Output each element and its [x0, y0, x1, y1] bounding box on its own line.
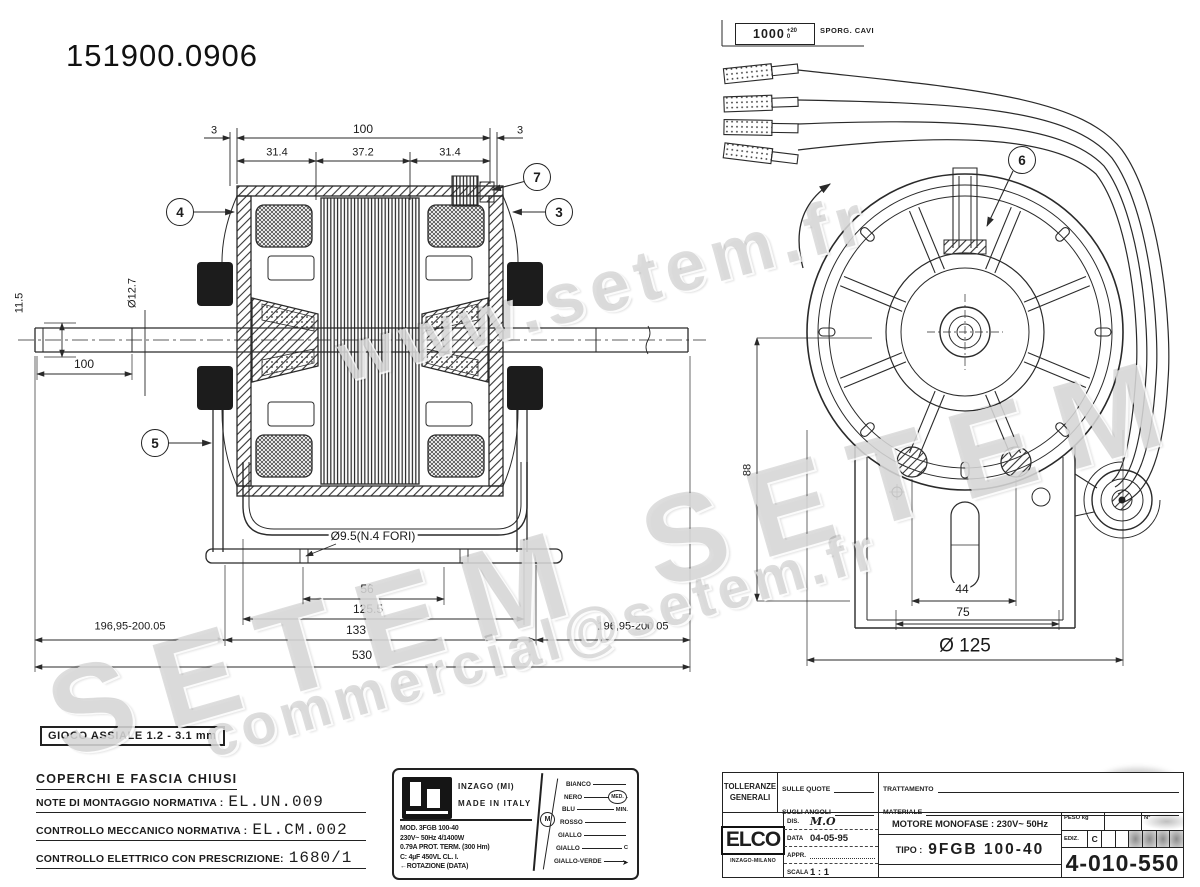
dim-shaft-diameter: Ø12.7: [128, 276, 139, 310]
company-logo: ELCO: [721, 826, 785, 854]
note-value: EL.UN.009: [228, 793, 323, 811]
dim-bracket-inner: 125.5: [351, 603, 385, 615]
dim-shaft-seat: 100: [72, 358, 96, 370]
dim-bracket-width: 133: [344, 624, 368, 636]
dim-seg-mid: 37.2: [350, 148, 375, 159]
dim-foot-holes: Ø9.5(N.4 FORI): [329, 530, 418, 542]
wire-row: GIALLO-VERDE: [554, 855, 628, 868]
right-view-dimensions: [757, 171, 1123, 666]
dim-base-span: 75: [954, 606, 971, 618]
cable-length-value: 1000: [753, 27, 785, 41]
dim-outer-diameter: Ø 125: [937, 637, 993, 656]
wire-row: GIALLO: [558, 829, 628, 842]
balloon-5: 5: [141, 429, 169, 457]
nameplate-made-in: MADE IN ITALY: [458, 799, 531, 808]
left-view-section: [18, 176, 706, 563]
dim-overall-length: 530: [350, 649, 374, 661]
dim-seg-left: 31.4: [264, 148, 289, 159]
notes-title: COPERCHI E FASCIA CHIUSI: [36, 772, 237, 790]
motor-type-row: TIPO : 9FGB 100-40: [879, 835, 1061, 865]
dim-slot-span: 44: [953, 583, 970, 595]
company-logo-cell: ELCO INZAGO-MILANO: [723, 813, 784, 877]
note-value: 1680/1: [289, 849, 353, 867]
company-city: INZAGO-MILANO: [730, 858, 776, 864]
note-value: EL.CM.002: [252, 821, 347, 839]
motor-description-cell: MOTORE MONOFASE : 230V~ 50Hz TIPO : 9FGB…: [878, 813, 1061, 877]
dim-cover-left: 3: [209, 126, 219, 137]
drawing-sheet: 151900.0906 1000 +20 0 SPORG. CAVI 3 100…: [0, 0, 1200, 887]
motor-symbol: M: [540, 812, 555, 827]
note-label: CONTROLLO ELETTRICO CON PRESCRIZIONE:: [36, 853, 284, 865]
wire-row: BLUMIN.: [562, 804, 628, 817]
dim-shaft-flat: 11.5: [15, 291, 26, 316]
wire-row: GIALLOC: [556, 842, 628, 855]
drawing-info-cell: DIS.M.O DATA04-05-95 APPR. SCALA1 : 1: [784, 813, 878, 877]
axial-play-note: GIOCO ASSIALE 1.2 - 3.1 mm: [40, 726, 225, 746]
cable-length-box: 1000 +20 0: [735, 23, 815, 45]
wire-row: BIANCO: [566, 778, 628, 791]
dim-center-height: 88: [743, 462, 754, 478]
note-row-elettrico: CONTROLLO ELETTRICO CON PRESCRIZIONE: 16…: [36, 849, 366, 869]
technical-drawing-linework: [0, 0, 1200, 887]
treatment-cell: TRATTAMENTO MATERIALE: [878, 773, 1183, 813]
cable-length-tolerance: +20 0: [787, 28, 797, 40]
note-label: NOTE DI MONTAGGIO NORMATIVA :: [36, 797, 223, 809]
dim-hole-span: 56: [358, 583, 375, 595]
drawing-number: 4-010-550: [1062, 848, 1183, 879]
elco-logo-mark: [402, 777, 452, 819]
dim-shaft-ext-left: 196,95-200.05: [93, 622, 168, 633]
dim-stator-length: 100: [351, 123, 375, 135]
motor-nameplate: INZAGO (MI) MADE IN ITALY MOD. 3FGB 100-…: [392, 768, 639, 880]
tolerance-fields-cell: SULLE QUOTE SUGLI ANGOLI: [778, 773, 878, 813]
wire-row: ROSSO: [560, 816, 628, 829]
nameplate-spec-lines: MOD. 3FGB 100-40 230V~ 50Hz 4/1400W 0.79…: [400, 824, 534, 872]
motor-description: MOTORE MONOFASE : 230V~ 50Hz: [879, 813, 1061, 835]
right-view-front: [722, 20, 1169, 628]
title-block: TOLLERANZE GENERALI SULLE QUOTE SUGLI AN…: [722, 772, 1184, 878]
balloon-3: 3: [545, 198, 573, 226]
nameplate-city: INZAGO (MI): [458, 782, 514, 791]
drawing-number-cell: PESO kg N° EDIZ. C 4-010-550: [1061, 813, 1183, 877]
balloon-4: 4: [166, 198, 194, 226]
wire-med-label: MED.: [608, 790, 627, 804]
dim-shaft-ext-right: 196,95-200.05: [596, 622, 671, 633]
balloon-6: 6: [1008, 146, 1036, 174]
dim-seg-right: 31.4: [437, 148, 462, 159]
tolerances-cell: TOLLERANZE GENERALI: [723, 773, 778, 813]
note-row-montaggio: NOTE DI MONTAGGIO NORMATIVA : EL.UN.009: [36, 793, 366, 813]
wire-end-arrow-icon: ➤: [622, 858, 629, 867]
note-label: CONTROLLO MECCANICO NORMATIVA :: [36, 825, 247, 837]
drawing-part-number: 151900.0906: [66, 38, 258, 74]
dim-cover-right: 3: [515, 126, 525, 137]
motor-type-value: 9FGB 100-40: [928, 841, 1044, 859]
note-row-meccanico: CONTROLLO MECCANICO NORMATIVA : EL.CM.00…: [36, 821, 366, 841]
cable-protrusion-label: SPORG. CAVI: [820, 26, 874, 35]
balloon-7: 7: [523, 163, 551, 191]
